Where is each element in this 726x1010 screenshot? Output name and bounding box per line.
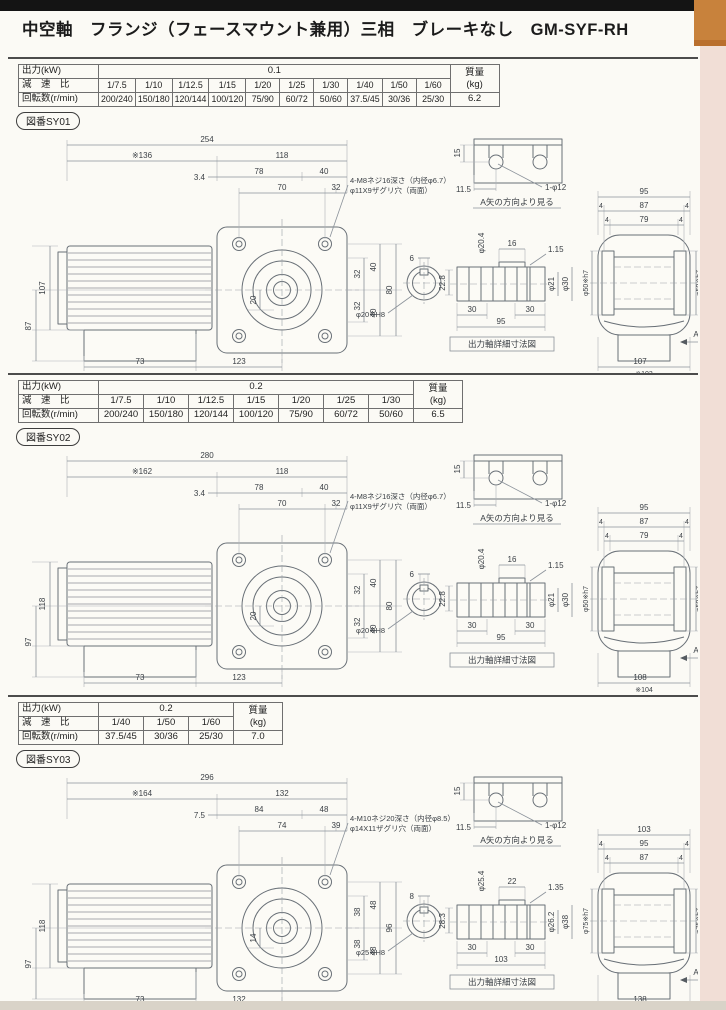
drawing-host: 280 ※162 118 3.4 78 40 70 32 118 97 32 3… bbox=[12, 447, 698, 695]
dim-label: 16 bbox=[508, 555, 517, 564]
dim-label: 97 bbox=[24, 959, 33, 968]
dim-label: 20 bbox=[249, 295, 258, 304]
dim-label: 16 bbox=[508, 239, 517, 248]
dim-label: φ26.2 bbox=[547, 911, 556, 932]
page-edge-strip bbox=[700, 0, 726, 1010]
dim-label: 79 bbox=[640, 215, 649, 224]
mounting-note-line1: 4-M8ネジ16深さ（内径φ6.7） bbox=[350, 491, 451, 501]
side-view-art bbox=[58, 857, 359, 1001]
shaft-detail-caption: 出力軸詳細寸法図 bbox=[468, 655, 536, 665]
spigot-callout: φ50※h7 bbox=[696, 586, 698, 612]
dim-label: 4 bbox=[685, 203, 689, 210]
mounting-note-line1: 4-M10ネジ20深さ（内径φ8.5） bbox=[350, 813, 455, 823]
mounting-note-line2: φ14X11ザグリ穴（両面） bbox=[350, 823, 436, 833]
dim-label: 4 bbox=[605, 217, 609, 224]
dim-label: 32 bbox=[332, 499, 341, 508]
dim-label: φ20.4 bbox=[477, 232, 486, 253]
hole-callout: 1-φ12 bbox=[545, 499, 567, 508]
dim-label: 254 bbox=[200, 135, 214, 144]
dim-label: 118 bbox=[38, 597, 47, 610]
mass-value: 7.0 bbox=[234, 731, 283, 745]
shaft-detail-view: 16 φ20.4 1.15 φ21 φ30 30 30 95 出力軸詳細寸法図 bbox=[450, 548, 572, 667]
dim-label: 39 bbox=[332, 821, 341, 830]
rear-view: 95 4 87 4 4 79 4 φ50※h7 φ50※h7 108 ※104 … bbox=[583, 503, 698, 694]
spigot-callout: φ50※h7 bbox=[583, 586, 590, 612]
mass-value: 6.5 bbox=[414, 409, 463, 423]
dim-label: 20 bbox=[249, 611, 258, 620]
dim-label: 70 bbox=[278, 183, 287, 192]
ratio-cell: 1/50 bbox=[382, 79, 416, 93]
spigot-callout: φ75※h7 bbox=[696, 908, 698, 934]
dim-label: 97 bbox=[24, 637, 33, 646]
rear-view: 95 4 87 4 4 79 4 φ50※h7 φ50※h7 107 ※103 … bbox=[583, 187, 698, 373]
content: 出力(kW) 0.1 質量(kg) 減 速 比 1/7.51/101/12.51… bbox=[8, 57, 698, 1010]
dim-label: φ30 bbox=[561, 592, 570, 607]
dim-label: ※164 bbox=[132, 789, 153, 798]
dim-label: 296 bbox=[200, 773, 214, 782]
dim-label: 79 bbox=[640, 531, 649, 540]
speed-cell: 50/60 bbox=[369, 409, 414, 423]
dim-label: 15 bbox=[453, 148, 462, 157]
dim-label: 4 bbox=[685, 519, 689, 526]
dim-label: 48 bbox=[320, 805, 329, 814]
dim-label: 11.5 bbox=[456, 823, 472, 832]
catalog-page: 中空軸 フランジ（フェースマウント兼用）三相 ブレーキなし GM-SYF-RH … bbox=[0, 0, 726, 1010]
dim-label: 4 bbox=[605, 855, 609, 862]
speed-label: 回転数(r/min) bbox=[19, 93, 99, 107]
dim-label: 48 bbox=[369, 900, 378, 909]
dim-label: 4 bbox=[679, 217, 683, 224]
speed-label: 回転数(r/min) bbox=[19, 731, 99, 745]
ratio-label: 減 速 比 bbox=[19, 79, 99, 93]
dim-label: 14 bbox=[249, 933, 258, 942]
speed-cell: 25/30 bbox=[189, 731, 234, 745]
dim-label: 30 bbox=[468, 305, 477, 314]
mounting-note: 4-M8ネジ16深さ（内径φ6.7） φ11X9ザグリ穴（両面） bbox=[330, 175, 451, 237]
dim-label: 32 bbox=[353, 585, 362, 594]
view-a-caption: A矢の方向より見る bbox=[480, 197, 554, 207]
view-direction-arrow: A bbox=[680, 646, 698, 661]
speed-cell: 37.5/45 bbox=[99, 731, 144, 745]
dim-label: 107 bbox=[38, 281, 47, 295]
output-row: 出力(kW) 0.1 質量(kg) bbox=[19, 65, 500, 79]
side-view-art bbox=[58, 219, 359, 363]
output-label: 出力(kW) bbox=[19, 703, 99, 717]
spigot-callout: φ50※h7 bbox=[696, 270, 698, 296]
terminal-box-view: 15 11.5 1-φ12 A矢の方向より見る bbox=[453, 139, 567, 208]
dim-label: 107 bbox=[633, 357, 647, 366]
dim-label: 4 bbox=[599, 841, 603, 848]
ratio-cell: 1/25 bbox=[324, 395, 369, 409]
spigot-callout: φ50※h7 bbox=[583, 270, 590, 296]
dim-label: ※136 bbox=[132, 151, 153, 160]
view-a-caption: A矢の方向より見る bbox=[480, 835, 554, 845]
dim-label: 70 bbox=[278, 499, 287, 508]
dim-label: 11.5 bbox=[456, 501, 472, 510]
speed-cell: 200/240 bbox=[99, 93, 136, 107]
output-value: 0.2 bbox=[99, 381, 414, 395]
ratio-cell: 1/7.5 bbox=[99, 79, 136, 93]
ratio-cell: 1/15 bbox=[234, 395, 279, 409]
dim-label: 280 bbox=[200, 451, 214, 460]
dim-label: 7.5 bbox=[194, 811, 206, 820]
bottom-strip bbox=[0, 1001, 726, 1010]
dim-label: 95 bbox=[640, 839, 649, 848]
dim-label: 103 bbox=[494, 955, 508, 964]
dim-label: 118 bbox=[276, 467, 289, 476]
speed-cell: 120/144 bbox=[172, 93, 209, 107]
dim-label: 40 bbox=[369, 578, 378, 587]
technical-drawing: 280 ※162 118 3.4 78 40 70 32 118 97 32 3… bbox=[12, 447, 698, 695]
page-title: 中空軸 フランジ（フェースマウント兼用）三相 ブレーキなし GM-SYF-RH bbox=[22, 16, 629, 40]
dim-label: 22 bbox=[508, 877, 517, 886]
bore-callout: φ25※H8 bbox=[356, 948, 385, 957]
dim-label: 22.8 bbox=[438, 591, 447, 607]
speed-cell: 75/90 bbox=[246, 93, 280, 107]
ratio-cell: 1/40 bbox=[348, 79, 382, 93]
speed-cell: 150/180 bbox=[144, 409, 189, 423]
section-sy02: 出力(kW) 0.2 質量(kg) 減 速 比 1/7.51/101/12.51… bbox=[8, 373, 698, 695]
shaft-detail-caption: 出力軸詳細寸法図 bbox=[468, 339, 536, 349]
dim-label: 30 bbox=[468, 943, 477, 952]
dim-label: 103 bbox=[637, 825, 651, 834]
ratio-cell: 1/60 bbox=[416, 79, 450, 93]
speed-cell: 100/120 bbox=[234, 409, 279, 423]
ratio-cell: 1/30 bbox=[314, 79, 348, 93]
dim-label: 87 bbox=[640, 517, 649, 526]
dim-label: 4 bbox=[679, 855, 683, 862]
view-direction-arrow: A bbox=[680, 330, 698, 345]
bore-callout: φ20※H8 bbox=[356, 626, 385, 635]
dim-label: 73 bbox=[136, 357, 145, 366]
dim-label: 30 bbox=[468, 621, 477, 630]
shaft-detail-view: 22 φ25.4 1.35 φ26.2 φ38 30 30 103 出力軸詳細寸… bbox=[450, 870, 572, 989]
speed-row: 回転数(r/min) 200/240150/180120/144100/1207… bbox=[19, 93, 500, 107]
mounting-note: 4-M8ネジ16深さ（内径φ6.7） φ11X9ザグリ穴（両面） bbox=[330, 491, 451, 553]
ratio-cell: 1/20 bbox=[279, 395, 324, 409]
dim-label: 11.5 bbox=[456, 185, 472, 194]
shaft-detail-caption: 出力軸詳細寸法図 bbox=[468, 977, 536, 987]
figure-number-badge: 図番SY02 bbox=[16, 428, 80, 446]
dim-label: 15 bbox=[453, 464, 462, 473]
dim-label: 95 bbox=[640, 503, 649, 512]
top-bar bbox=[0, 0, 694, 11]
dim-label: 108 bbox=[633, 673, 647, 682]
figure-number-badge: 図番SY01 bbox=[16, 112, 80, 130]
dim-label: 95 bbox=[497, 633, 506, 642]
output-value: 0.2 bbox=[99, 703, 234, 717]
view-direction-arrow: A bbox=[680, 968, 698, 983]
dim-label: 1.35 bbox=[548, 883, 564, 892]
dim-label: 15 bbox=[453, 786, 462, 795]
technical-drawing: 296 ※164 132 7.5 84 48 74 39 118 97 38 3… bbox=[12, 769, 698, 1010]
dim-label: 4 bbox=[685, 841, 689, 848]
dim-label: 123 bbox=[232, 673, 246, 682]
terminal-box-view: 15 11.5 1-φ12 A矢の方向より見る bbox=[453, 455, 567, 524]
speed-cell: 200/240 bbox=[99, 409, 144, 423]
mass-header: 質量(kg) bbox=[234, 703, 283, 731]
spec-table: 出力(kW) 0.2 質量(kg) 減 速 比 1/401/501/60 回転数… bbox=[18, 702, 283, 745]
dim-label: 87 bbox=[640, 853, 649, 862]
output-label: 出力(kW) bbox=[19, 65, 99, 79]
dim-label: 6 bbox=[410, 254, 415, 263]
dim-label: 80 bbox=[385, 601, 394, 610]
ratio-cell: 1/30 bbox=[369, 395, 414, 409]
dim-label: φ30 bbox=[561, 276, 570, 291]
mass-header: 質量(kg) bbox=[414, 381, 463, 409]
speed-cell: 100/120 bbox=[209, 93, 246, 107]
dim-label: 78 bbox=[255, 483, 264, 492]
dim-label: 80 bbox=[385, 285, 394, 294]
speed-cell: 60/72 bbox=[324, 409, 369, 423]
ratio-cell: 1/50 bbox=[144, 717, 189, 731]
section-sy01: 出力(kW) 0.1 質量(kg) 減 速 比 1/7.51/101/12.51… bbox=[8, 57, 698, 373]
mounting-note: 4-M10ネジ20深さ（内径φ8.5） φ14X11ザグリ穴（両面） bbox=[330, 813, 455, 875]
dim-label: 96 bbox=[385, 923, 394, 932]
technical-drawing: 254 ※136 118 3.4 78 40 70 32 107 87 32 3… bbox=[12, 131, 698, 373]
dim-label: 118 bbox=[38, 919, 47, 932]
dim-label: 38 bbox=[353, 907, 362, 916]
mounting-note-line2: φ11X9ザグリ穴（両面） bbox=[350, 185, 432, 195]
dim-label: ※103 bbox=[635, 371, 653, 373]
spec-table: 出力(kW) 0.2 質量(kg) 減 速 比 1/7.51/101/12.51… bbox=[18, 380, 463, 423]
arrow-a-label: A bbox=[693, 330, 698, 339]
output-value: 0.1 bbox=[99, 65, 451, 79]
ratio-row: 減 速 比 1/7.51/101/12.51/151/201/251/301/4… bbox=[19, 79, 500, 93]
dim-label: 28.3 bbox=[438, 913, 447, 929]
speed-cell: 120/144 bbox=[189, 409, 234, 423]
mass-value: 6.2 bbox=[450, 93, 499, 107]
dim-label: 4 bbox=[599, 519, 603, 526]
ratio-cell: 1/60 bbox=[189, 717, 234, 731]
dim-label: 32 bbox=[353, 269, 362, 278]
ratio-label: 減 速 比 bbox=[19, 395, 99, 409]
speed-cell: 75/90 bbox=[279, 409, 324, 423]
dim-label: 6 bbox=[410, 570, 415, 579]
speed-cell: 50/60 bbox=[314, 93, 348, 107]
dim-label: 40 bbox=[320, 167, 329, 176]
dim-label: 84 bbox=[255, 805, 264, 814]
dim-label: 4 bbox=[599, 203, 603, 210]
dim-label: φ20.4 bbox=[477, 548, 486, 569]
ratio-cell: 1/40 bbox=[99, 717, 144, 731]
figure-number-badge: 図番SY03 bbox=[16, 750, 80, 768]
dim-label: 118 bbox=[276, 151, 289, 160]
dim-label: 1.15 bbox=[548, 245, 564, 254]
view-a-caption: A矢の方向より見る bbox=[480, 513, 554, 523]
ratio-cell: 1/25 bbox=[280, 79, 314, 93]
hole-callout: 1-φ12 bbox=[545, 183, 567, 192]
dim-label: ※104 bbox=[635, 687, 653, 694]
dim-label: 73 bbox=[136, 673, 145, 682]
rear-view: 103 4 95 4 4 87 4 φ75※h7 φ75※h7 138 ※134… bbox=[583, 825, 698, 1010]
dim-label: 95 bbox=[640, 187, 649, 196]
speed-cell: 37.5/45 bbox=[348, 93, 382, 107]
spigot-callout: φ75※h7 bbox=[583, 908, 590, 934]
dim-label: 4 bbox=[605, 533, 609, 540]
dim-label: 123 bbox=[232, 357, 246, 366]
ratio-row: 減 速 比 1/7.51/101/12.51/151/201/251/30 bbox=[19, 395, 463, 409]
dim-label: ※162 bbox=[132, 467, 153, 476]
output-row: 出力(kW) 0.2 質量(kg) bbox=[19, 703, 283, 717]
dim-label: 8 bbox=[410, 892, 415, 901]
ratio-cell: 1/15 bbox=[209, 79, 246, 93]
dim-label: 22.8 bbox=[438, 275, 447, 291]
dim-label: 1.15 bbox=[548, 561, 564, 570]
mounting-note-line1: 4-M8ネジ16深さ（内径φ6.7） bbox=[350, 175, 451, 185]
dim-label: 30 bbox=[526, 621, 535, 630]
speed-label: 回転数(r/min) bbox=[19, 409, 99, 423]
dim-label: 74 bbox=[278, 821, 287, 830]
ratio-label: 減 速 比 bbox=[19, 717, 99, 731]
speed-row: 回転数(r/min) 200/240150/180120/144100/1207… bbox=[19, 409, 463, 423]
dim-label: 30 bbox=[526, 943, 535, 952]
arrow-a-label: A bbox=[693, 968, 698, 977]
side-view-art bbox=[58, 535, 359, 679]
dim-label: φ38 bbox=[561, 914, 570, 929]
speed-cell: 30/36 bbox=[382, 93, 416, 107]
bore-callout: φ20※H8 bbox=[356, 310, 385, 319]
page-edge-tab bbox=[694, 0, 726, 46]
speed-row: 回転数(r/min) 37.5/4530/3625/307.0 bbox=[19, 731, 283, 745]
dim-label: 95 bbox=[497, 317, 506, 326]
dim-label: 78 bbox=[255, 167, 264, 176]
speed-cell: 60/72 bbox=[280, 93, 314, 107]
speed-cell: 25/30 bbox=[416, 93, 450, 107]
terminal-box-view: 15 11.5 1-φ12 A矢の方向より見る bbox=[453, 777, 567, 846]
hole-callout: 1-φ12 bbox=[545, 821, 567, 830]
output-label: 出力(kW) bbox=[19, 381, 99, 395]
ratio-cell: 1/7.5 bbox=[99, 395, 144, 409]
ratio-cell: 1/10 bbox=[144, 395, 189, 409]
dim-label: 87 bbox=[640, 201, 649, 210]
shaft-detail-view: 16 φ20.4 1.15 φ21 φ30 30 30 95 出力軸詳細寸法図 bbox=[450, 232, 572, 351]
dim-label: 30 bbox=[526, 305, 535, 314]
drawing-host: 296 ※164 132 7.5 84 48 74 39 118 97 38 3… bbox=[12, 769, 698, 1010]
ratio-cell: 1/12.5 bbox=[189, 395, 234, 409]
dim-label: 32 bbox=[332, 183, 341, 192]
dim-label: 4 bbox=[679, 533, 683, 540]
drawing-host: 254 ※136 118 3.4 78 40 70 32 107 87 32 3… bbox=[12, 131, 698, 373]
mounting-note-line2: φ11X9ザグリ穴（両面） bbox=[350, 501, 432, 511]
arrow-a-label: A bbox=[693, 646, 698, 655]
dim-label: φ21 bbox=[547, 276, 556, 291]
speed-cell: 150/180 bbox=[135, 93, 172, 107]
ratio-cell: 1/12.5 bbox=[172, 79, 209, 93]
mass-header: 質量(kg) bbox=[450, 65, 499, 93]
speed-cell: 30/36 bbox=[144, 731, 189, 745]
ratio-cell: 1/10 bbox=[135, 79, 172, 93]
dim-label: φ25.4 bbox=[477, 870, 486, 891]
section-sy03: 出力(kW) 0.2 質量(kg) 減 速 比 1/401/501/60 回転数… bbox=[8, 695, 698, 1010]
dim-label: 40 bbox=[320, 483, 329, 492]
dim-label: 3.4 bbox=[194, 489, 206, 498]
dim-label: 87 bbox=[24, 321, 33, 330]
output-row: 出力(kW) 0.2 質量(kg) bbox=[19, 381, 463, 395]
dim-label: 132 bbox=[275, 789, 289, 798]
spec-table: 出力(kW) 0.1 質量(kg) 減 速 比 1/7.51/101/12.51… bbox=[18, 64, 500, 107]
dim-label: 3.4 bbox=[194, 173, 206, 182]
dim-label: φ21 bbox=[547, 592, 556, 607]
dim-label: 40 bbox=[369, 262, 378, 271]
ratio-cell: 1/20 bbox=[246, 79, 280, 93]
